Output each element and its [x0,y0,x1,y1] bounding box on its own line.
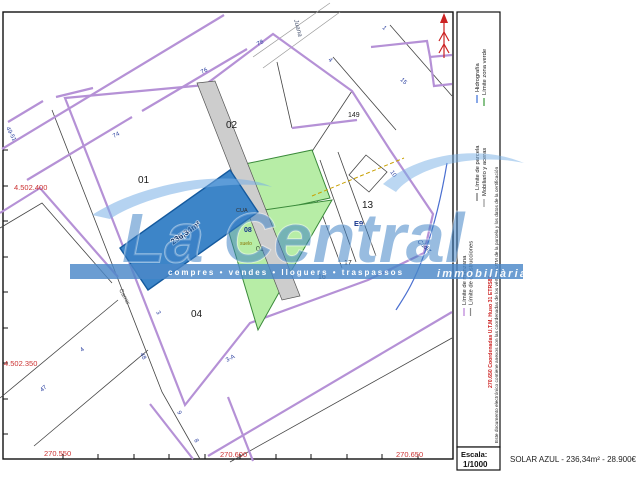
parcel-label-149: 149 [348,112,360,119]
watermark-immobiliaria: immobiliària [437,268,528,280]
coord-label-x-270550: 270.550 [44,449,71,458]
coord-label-x-270650: 270.650 [396,450,423,459]
legend-limite-parcela: Límite de parcela [475,145,481,190]
watermark-tagline: compres • vendes • lloguers • traspassos [168,268,404,277]
watermark-brand: La Central [122,199,466,277]
sidebar-coordinates-note: 270.650 Coordenadas U.T.M. Huso 31 ETRS8… [488,275,494,388]
legend-limite-zona-verde: Límite zona verde [482,49,488,95]
cadastral-map-canvas: 010204131491617E90801CUAsuelo236,34m²767… [0,0,640,480]
coord-label-x-270600: 270.600 [220,450,247,459]
legend-hidrografia: Hidrografía [475,63,481,92]
parcel-label-02: 02 [226,120,238,131]
coord-label-y-mid: 4.502.350 [4,359,37,368]
cadastral-plan-page: 010204131491617E90801CUAsuelo236,34m²767… [0,0,640,480]
coord-label-y-top: 4.502.400 [14,183,47,192]
parcel-label-01: 01 [138,175,150,186]
listing-summary: SOLAR AZUL - 236,34m² - 28.900€ [510,455,637,464]
sidebar-disclaimer: Este documento electrónico contiene anex… [494,166,500,443]
scale-label: Escala: [461,450,487,459]
scale-value: 1/1000 [463,460,488,469]
parcel-label-04: 04 [191,309,203,320]
